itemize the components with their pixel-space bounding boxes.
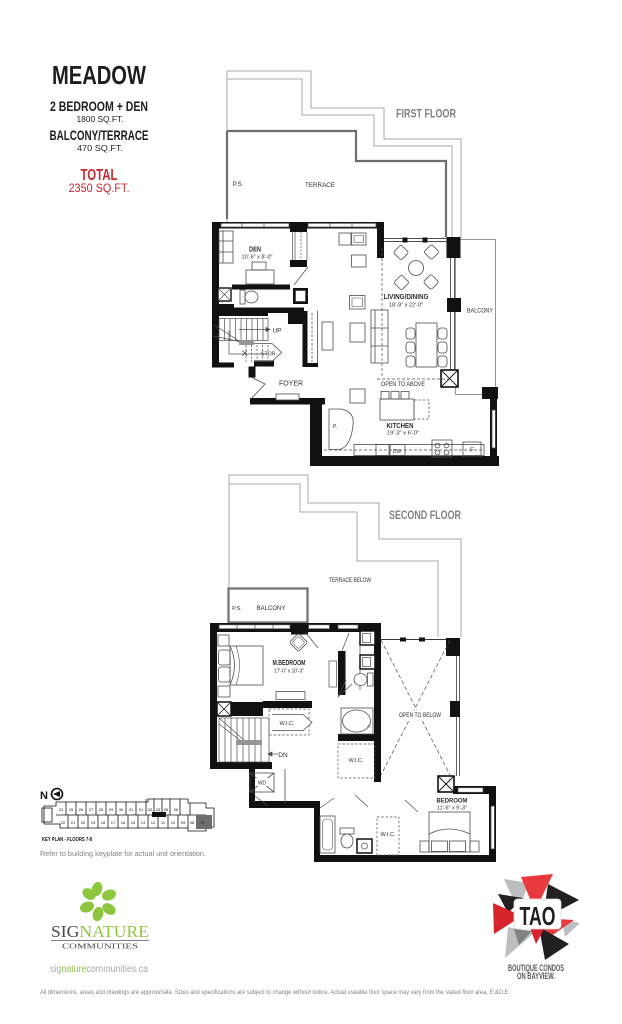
svg-text:UP: UP xyxy=(272,328,281,335)
svg-text:07: 07 xyxy=(201,820,206,825)
svg-text:2 BEDROOM + DEN: 2 BEDROOM + DEN xyxy=(50,98,148,114)
svg-text:12: 12 xyxy=(151,820,156,825)
svg-text:W.I.C.: W.I.C. xyxy=(381,832,396,838)
svg-text:BALCONY/TERRACE: BALCONY/TERRACE xyxy=(50,127,149,143)
svg-text:29: 29 xyxy=(109,807,114,812)
svg-text:2350 SQ.FT.: 2350 SQ.FT. xyxy=(69,181,130,195)
svg-text:OPEN TO ABOVE: OPEN TO ABOVE xyxy=(381,382,425,388)
svg-text:09: 09 xyxy=(181,820,186,825)
svg-text:28: 28 xyxy=(99,807,104,812)
svg-text:W.I.C.: W.I.C. xyxy=(349,758,364,764)
svg-text:KITCHEN: KITCHEN xyxy=(387,423,414,430)
svg-text:18: 18 xyxy=(101,820,106,825)
svg-text:W.I.C.: W.I.C. xyxy=(280,721,295,727)
svg-text:19: 19 xyxy=(91,820,96,825)
svg-text:02: 02 xyxy=(148,807,153,812)
svg-text:KEY PLAN - FLOORS 7-8: KEY PLAN - FLOORS 7-8 xyxy=(42,837,92,843)
svg-text:15: 15 xyxy=(131,820,136,825)
svg-text:ON BAYVIEW.: ON BAYVIEW. xyxy=(517,971,555,981)
svg-text:TERRACE BELOW: TERRACE BELOW xyxy=(329,578,371,584)
svg-text:F: F xyxy=(470,448,474,454)
svg-text:01: 01 xyxy=(139,807,144,812)
svg-text:08: 08 xyxy=(190,820,195,825)
svg-text:SECOND FLOOR: SECOND FLOOR xyxy=(389,510,462,522)
svg-text:06: 06 xyxy=(174,807,179,812)
svg-text:10: 10 xyxy=(171,820,176,825)
svg-text:FOYER: FOYER xyxy=(279,381,303,388)
svg-text:470 SQ.FT.: 470 SQ.FT. xyxy=(77,143,123,153)
svg-text:11'-6" x 9'-3": 11'-6" x 9'-3" xyxy=(437,806,467,812)
svg-text:10'-6" x 8'-0": 10'-6" x 8'-0" xyxy=(242,255,273,261)
svg-text:27: 27 xyxy=(89,807,94,812)
svg-text:TAO: TAO xyxy=(520,901,556,931)
svg-text:17'-0" x 10'-3": 17'-0" x 10'-3" xyxy=(274,669,304,675)
svg-text:TERRACE: TERRACE xyxy=(305,182,336,189)
svg-text:P.: P. xyxy=(333,424,337,430)
svg-text:26: 26 xyxy=(79,807,84,812)
svg-text:22: 22 xyxy=(61,820,66,825)
svg-text:18'-9" x 22'-0": 18'-9" x 22'-0" xyxy=(389,303,423,309)
svg-text:OPEN TO BELOW: OPEN TO BELOW xyxy=(399,713,441,719)
svg-text:BALCONY: BALCONY xyxy=(467,309,493,315)
svg-text:23: 23 xyxy=(59,807,64,812)
svg-text:COMMUNITIES: COMMUNITIES xyxy=(62,944,138,951)
svg-text:17: 17 xyxy=(111,820,116,825)
svg-text:1800 SQ.FT.: 1800 SQ.FT. xyxy=(77,114,124,124)
svg-text:signaturecommunities.ca: signaturecommunities.ca xyxy=(50,964,148,975)
svg-text:STOR.: STOR. xyxy=(261,352,277,358)
svg-text:WD: WD xyxy=(258,781,267,787)
svg-text:25: 25 xyxy=(69,807,74,812)
svg-text:FIRST FLOOR: FIRST FLOOR xyxy=(396,109,457,121)
svg-text:16: 16 xyxy=(121,820,126,825)
svg-text:All dimensions, areas and draw: All dimensions, areas and drawings are a… xyxy=(40,990,510,996)
svg-text:03: 03 xyxy=(156,807,161,812)
svg-text:DEN: DEN xyxy=(249,247,261,254)
svg-text:19'-3" x 6'-0": 19'-3" x 6'-0" xyxy=(387,431,419,437)
svg-text:DN: DN xyxy=(278,752,288,759)
svg-text:P.S.: P.S. xyxy=(232,606,242,612)
svg-text:Refer to building keyplate for: Refer to building keyplate for actual un… xyxy=(40,849,206,858)
svg-text:N: N xyxy=(40,790,48,802)
svg-text:M.BEDROOM: M.BEDROOM xyxy=(273,660,306,667)
svg-text:30: 30 xyxy=(119,807,124,812)
svg-text:13: 13 xyxy=(141,820,146,825)
svg-text:BEDROOM: BEDROOM xyxy=(437,798,468,805)
svg-text:MEADOW: MEADOW xyxy=(52,60,146,90)
svg-text:20: 20 xyxy=(81,820,86,825)
svg-text:31: 31 xyxy=(129,807,134,812)
svg-text:SIGNATURE: SIGNATURE xyxy=(51,922,149,941)
svg-text:P.S.: P.S. xyxy=(233,182,244,188)
svg-text:21: 21 xyxy=(71,820,76,825)
svg-text:05: 05 xyxy=(164,807,169,812)
svg-text:LIVING/DINING: LIVING/DINING xyxy=(384,294,430,301)
svg-text:BALCONY: BALCONY xyxy=(257,606,286,612)
